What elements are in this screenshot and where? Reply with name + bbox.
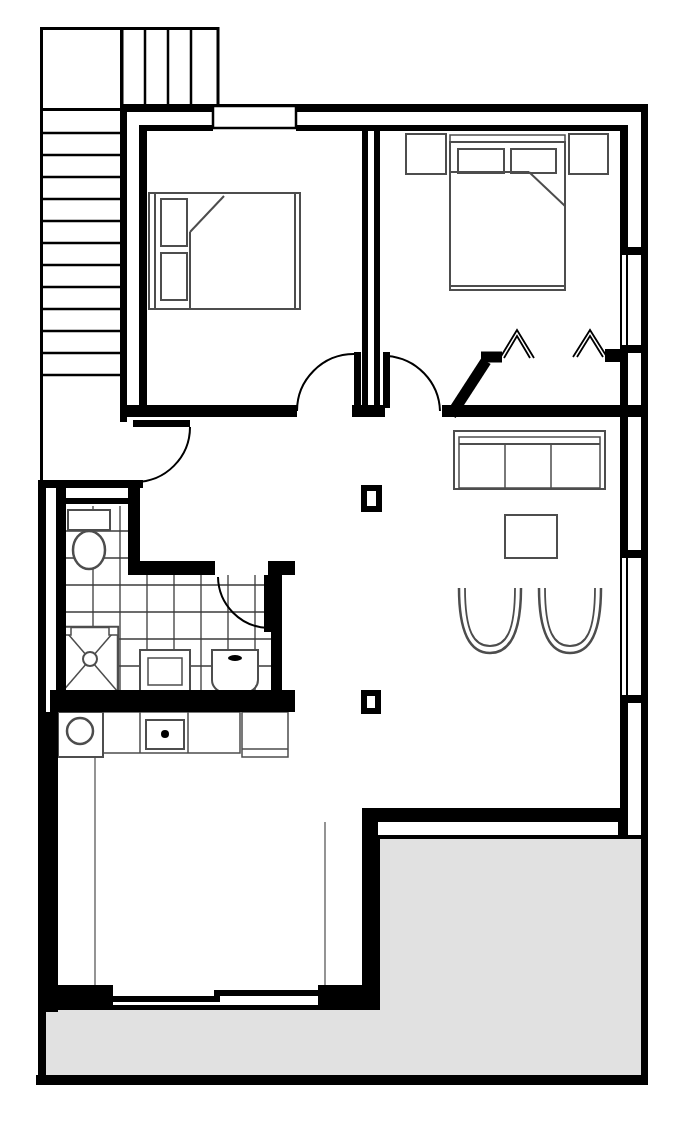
- structural-column: [361, 690, 381, 714]
- bedroom-partition-wall: [362, 126, 368, 406]
- door-leaf-bedroom1: [354, 352, 361, 408]
- cooktop-knob: [161, 730, 169, 738]
- west-exterior-wall: [38, 712, 58, 1012]
- window-jamb: [620, 550, 648, 558]
- window-jamb: [620, 345, 648, 353]
- toilet: [68, 510, 110, 569]
- bathroom-appliance: [212, 650, 258, 692]
- bathroom-door-stub: [268, 561, 295, 575]
- south-wall-stub-right: [318, 985, 378, 1010]
- bedrooms-south-wall: [120, 405, 297, 417]
- window-jamb: [620, 695, 648, 703]
- door-leaf-hall: [133, 420, 190, 427]
- sliding-door-panel: [214, 990, 318, 996]
- bathroom-west-wall: [56, 488, 66, 690]
- south-wall-stub-left: [38, 985, 113, 1010]
- terrace-south-border: [36, 1075, 648, 1085]
- washbasin: [140, 650, 190, 693]
- floor-plan-page: [0, 0, 684, 1125]
- wall-connector: [618, 808, 628, 838]
- terrace-west-border: [38, 1008, 46, 1078]
- east-inner-wall: [620, 695, 628, 815]
- east-inner-wall: [620, 345, 628, 558]
- bedroom2-window: [620, 255, 628, 345]
- bedroom1-window: [213, 106, 296, 128]
- bathroom-south-wall: [50, 690, 295, 712]
- west-exterior-wall: [38, 480, 46, 712]
- door-leaf-bathroom: [264, 575, 271, 632]
- bedroom1-west-wall: [139, 125, 147, 412]
- shower: [62, 627, 118, 692]
- floor-plan-canvas: [0, 0, 684, 1125]
- bathroom-step-wall: [128, 561, 215, 575]
- stairwell-wall: [120, 110, 127, 422]
- bathroom-east-wall: [271, 575, 282, 695]
- bathroom-window-inner-line: [58, 498, 135, 504]
- sliding-door-sill: [111, 1005, 318, 1007]
- living-south-wall: [362, 808, 628, 822]
- north-inner-wall: [296, 125, 628, 131]
- bedrooms-south-wall: [442, 405, 648, 417]
- east-inner-wall: [620, 126, 628, 255]
- shower-drain: [83, 652, 97, 666]
- dining-east-wall: [362, 808, 378, 1010]
- north-inner-wall: [147, 125, 213, 131]
- bedroom-partition-wall: [374, 126, 380, 406]
- bathroom-north-wall: [38, 480, 143, 488]
- living-room-window: [620, 558, 628, 695]
- closet-wall-stub: [605, 349, 622, 362]
- bathroom-nook-wall: [128, 488, 140, 570]
- door-leaf-bedroom2: [383, 352, 390, 408]
- north-exterior-wall: [122, 104, 648, 112]
- stairwell-edge: [40, 110, 43, 485]
- sliding-door-panel: [111, 996, 220, 1002]
- structural-column: [361, 485, 382, 512]
- window-jamb: [620, 247, 648, 255]
